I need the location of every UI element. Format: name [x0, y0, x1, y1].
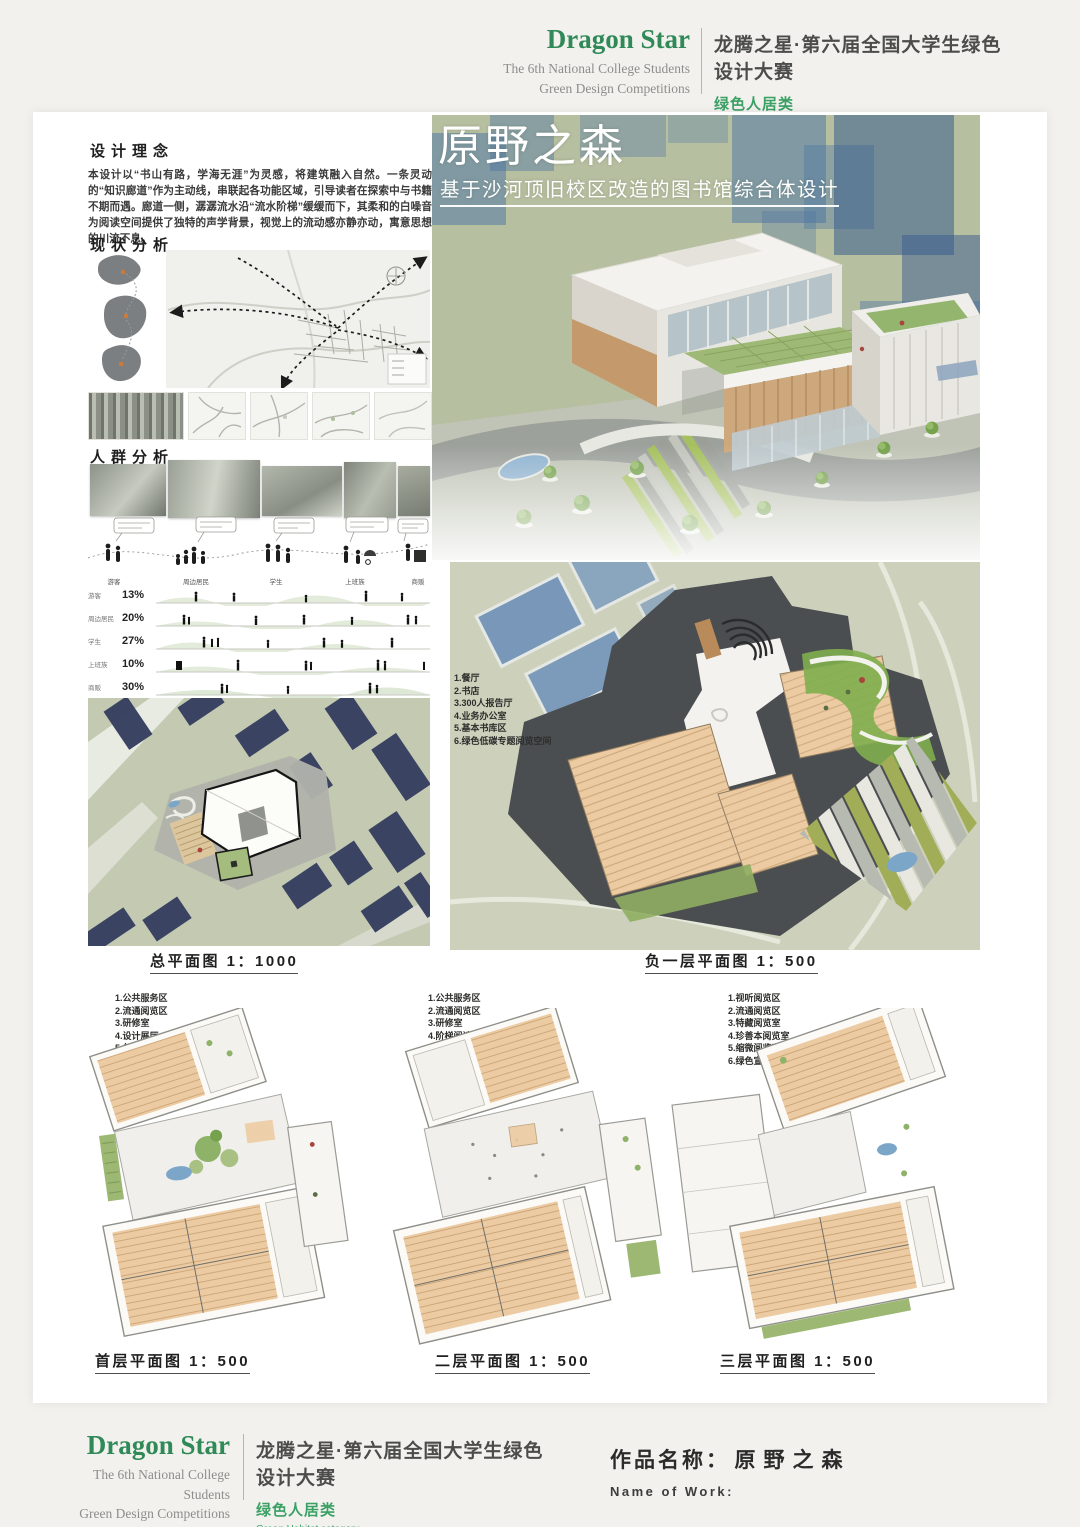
floor2-caption: 二层平面图 1：500 — [435, 1350, 590, 1374]
row-strip — [156, 676, 430, 698]
row-pct: 20% — [122, 612, 156, 624]
row-pct: 10% — [122, 658, 156, 670]
work-name-label: 作品名称： — [610, 1449, 730, 1472]
floor2-plan-illustration — [368, 1008, 674, 1346]
status-maps-figure — [88, 250, 430, 388]
work-name-block: 作品名称： 原野之森 Name of Work: — [610, 1444, 1030, 1499]
chart-row-students: 学生 27% — [88, 630, 430, 652]
floor1-caption: 首层平面图 1：500 — [95, 1350, 250, 1374]
chart-row-workers: 上班族 10% — [88, 653, 430, 675]
row-pct: 13% — [122, 589, 156, 601]
legend-item: 5.基本书库区 — [454, 722, 574, 735]
figure-ground-thumbnail — [88, 392, 184, 440]
row-label: 游客 — [88, 590, 122, 600]
legend-item: 2.书店 — [454, 685, 574, 698]
map-sketch-thumbnail-4 — [374, 392, 432, 440]
site-photo-1 — [90, 464, 166, 516]
row-strip — [156, 607, 430, 629]
status-maps-illustration — [88, 250, 430, 388]
header-brand-block: Dragon Star The 6th National College Stu… — [420, 26, 690, 98]
hero-title: 原野之森 — [438, 125, 626, 169]
map-sketch-thumbnail-3 — [312, 392, 370, 440]
footer-brand-subtitle-2: Green Design Competitions — [60, 1504, 230, 1524]
chart-row-tourist: 游客 13% — [88, 584, 430, 606]
status-thumbnails — [88, 392, 430, 438]
legend-item: 1.公共服务区 — [115, 992, 225, 1005]
competition-title: 龙腾之星·第六届全国大学生绿色设计大赛 — [714, 30, 1014, 84]
crowd-groups-figure — [88, 516, 430, 576]
footer-divider — [243, 1434, 244, 1500]
category-cn: 绿色人居类 — [714, 93, 1014, 114]
crowd-groups-illustration — [88, 516, 430, 576]
crowd-photo-strip — [90, 460, 430, 520]
header-divider — [701, 28, 702, 94]
footer-brand-subtitle-1: The 6th National College Students — [60, 1465, 230, 1504]
legend-item: 4.业务办公室 — [454, 710, 574, 723]
legend-item: 1.视听阅览区 — [728, 992, 838, 1005]
floor1-plan-figure — [62, 1008, 372, 1346]
hero-render: 原野之森 基于沙河顶旧校区改造的图书馆综合体设计 — [432, 115, 980, 560]
work-name-label-en: Name of Work: — [610, 1484, 1030, 1499]
site-photo-5 — [398, 466, 430, 516]
row-pct: 27% — [122, 635, 156, 647]
legend-item: 1.餐厅 — [454, 672, 574, 685]
floor1-plan-illustration — [62, 1008, 372, 1346]
footer-brand-logo: Dragon Star — [60, 1432, 230, 1459]
chart-row-vendors: 商贩 30% — [88, 676, 430, 698]
site-photo-4 — [344, 462, 396, 518]
basement-plan-figure: 1.餐厅 2.书店 3.300人报告厅 4.业务办公室 5.基本书库区 6.绿色… — [450, 562, 980, 950]
row-label: 上班族 — [88, 659, 122, 669]
row-pct: 30% — [122, 681, 156, 693]
row-label: 周边居民 — [88, 613, 122, 623]
row-strip — [156, 653, 430, 675]
brand-subtitle-2: Green Design Competitions — [420, 79, 690, 99]
basement-plan-caption: 负一层平面图 1：500 — [645, 950, 818, 974]
site-plan-caption: 总平面图 1：1000 — [150, 950, 298, 974]
footer-competition-title: 龙腾之星·第六届全国大学生绿色设计大赛 — [256, 1436, 556, 1490]
site-plan-illustration — [88, 698, 430, 946]
basement-plan-illustration — [450, 562, 980, 950]
brand-logo: Dragon Star — [420, 26, 690, 53]
crowd-timeline-chart: 游客 13% 周边居民 20% 学生 27% — [88, 584, 430, 706]
legend-item: 3.300人报告厅 — [454, 697, 574, 710]
poster-page: Dragon Star The 6th National College Stu… — [0, 0, 1080, 1527]
map-sketch-thumbnail-2 — [250, 392, 308, 440]
floor3-plan-illustration — [652, 1008, 982, 1346]
brand-subtitle-1: The 6th National College Students — [420, 59, 690, 79]
work-name-value: 原野之森 — [734, 1449, 850, 1472]
row-strip — [156, 584, 430, 606]
chart-row-residents: 周边居民 20% — [88, 607, 430, 629]
floor3-caption: 三层平面图 1：500 — [720, 1350, 875, 1374]
legend-item: 6.绿色低碳专题阅览空间 — [454, 735, 574, 748]
footer-title-block: 龙腾之星·第六届全国大学生绿色设计大赛 绿色人居类 Green Habitat … — [256, 1436, 556, 1527]
footer-brand-block: Dragon Star The 6th National College Stu… — [60, 1432, 230, 1524]
site-photo-2 — [168, 460, 260, 518]
footer-category-cn: 绿色人居类 — [256, 1499, 556, 1520]
site-photo-3 — [262, 466, 342, 516]
concept-heading: 设计理念 — [90, 140, 174, 161]
basement-legend: 1.餐厅 2.书店 3.300人报告厅 4.业务办公室 5.基本书库区 6.绿色… — [454, 672, 574, 748]
legend-item: 1.公共服务区 — [428, 992, 538, 1005]
row-label: 学生 — [88, 636, 122, 646]
map-sketch-thumbnail-1 — [188, 392, 246, 440]
row-strip — [156, 630, 430, 652]
floor3-plan-figure — [652, 1008, 982, 1346]
hero-subtitle: 基于沙河顶旧校区改造的图书馆综合体设计 — [440, 173, 839, 207]
site-plan-figure — [88, 698, 430, 946]
row-label: 商贩 — [88, 682, 122, 692]
floor2-plan-figure — [368, 1008, 674, 1346]
